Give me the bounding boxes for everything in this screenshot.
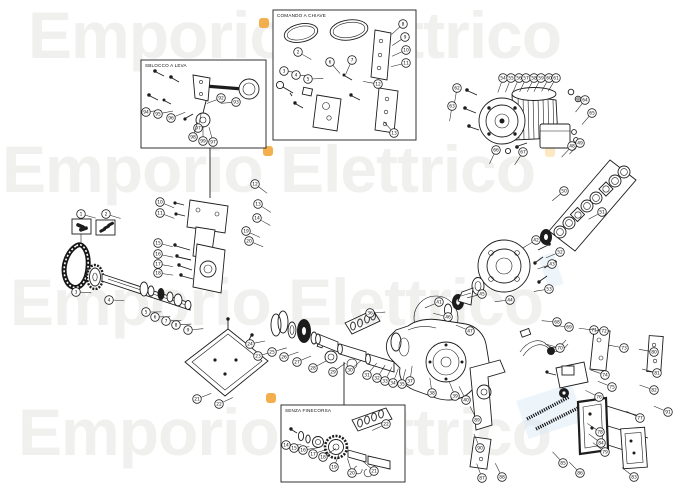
balloon-leader-line	[545, 344, 555, 347]
balloon-leader-line	[301, 356, 311, 360]
part-number: 17	[155, 262, 161, 268]
balloon-leader-line	[425, 304, 435, 308]
balloon-leader-line	[654, 406, 664, 410]
part-number: 55	[508, 76, 514, 82]
part-number: 52	[557, 250, 563, 256]
part-number: 44	[507, 298, 513, 304]
balloon-leader-line	[450, 111, 452, 121]
part-number: 30	[347, 368, 353, 374]
part-number: 81	[654, 371, 660, 377]
part-number: 48	[569, 144, 575, 150]
part-number: 6	[329, 60, 332, 66]
part-number: 21	[194, 397, 200, 403]
exploded-parts-diagram: SBLOCCO A LEVA	[0, 0, 694, 500]
balloon-leader-line	[86, 215, 96, 218]
part-number: 65	[589, 111, 595, 117]
part-number: 96	[168, 116, 174, 122]
part-number: 27	[294, 360, 300, 366]
part-number: 15	[291, 446, 297, 452]
part-number: 21	[371, 469, 377, 475]
balloon-leader-line	[546, 254, 556, 258]
part-number: 75	[609, 385, 615, 391]
part-number: 13	[391, 131, 397, 137]
balloon-leader-line	[589, 214, 598, 219]
balloon-leader-line	[193, 329, 204, 330]
part-number: 12	[252, 182, 258, 188]
part-number: 73	[621, 346, 627, 352]
part-number: 49	[577, 141, 583, 147]
balloon-leader-line	[354, 360, 362, 367]
part-number: 89	[474, 418, 480, 424]
part-number: 18	[320, 455, 326, 461]
balloon-leader-line	[163, 255, 173, 257]
part-number: 85	[560, 461, 566, 467]
inset-release-lever-label: SBLOCCO A LEVA	[145, 63, 188, 68]
part-number: 72	[601, 329, 607, 335]
part-number: 80	[651, 350, 657, 356]
part-number: 24	[247, 342, 253, 348]
part-number: 50	[561, 189, 567, 195]
part-number: 37	[407, 379, 413, 385]
part-number: 41	[436, 300, 442, 306]
part-number: 17	[310, 452, 316, 458]
part-number: 64	[582, 98, 588, 104]
balloon-leader-line	[253, 243, 263, 247]
balloon-leader-line	[552, 194, 560, 201]
part-number: 61	[553, 76, 559, 82]
limit-switch-assembly	[470, 328, 663, 469]
balloon-leader-line	[261, 220, 270, 225]
part-number: 98	[190, 135, 196, 141]
inset-release-lever: SBLOCCO A LEVA	[141, 60, 266, 198]
part-number: 5	[145, 310, 148, 316]
balloon-leader-line	[576, 104, 583, 112]
balloon-leader-line	[609, 345, 619, 347]
balloon-leader-line	[163, 265, 173, 267]
balloon-leader-line	[523, 242, 532, 247]
release-bracket	[173, 200, 228, 293]
part-number: 9	[404, 35, 407, 41]
part-number: 77	[637, 416, 643, 422]
part-number: 53	[546, 287, 552, 293]
part-number: 54	[500, 76, 506, 82]
balloon-leader-line	[163, 274, 173, 275]
seal-ring-icon	[554, 166, 630, 238]
part-number: 87	[479, 476, 485, 482]
part-number: 4	[108, 298, 111, 304]
balloon-leader-line	[454, 93, 456, 103]
part-number: 3	[75, 290, 78, 296]
part-number: 90	[477, 446, 483, 452]
balloon-leader-line	[250, 233, 260, 237]
balloon-leader-line	[163, 244, 173, 247]
balloon-leader-line	[582, 117, 589, 125]
balloon-leader-line	[288, 352, 298, 355]
balloon-leader-line	[553, 452, 560, 460]
part-number: 33	[382, 379, 388, 385]
part-number: 92	[218, 96, 224, 102]
part-number: 83	[631, 475, 637, 481]
balloon-leader-line	[626, 411, 636, 416]
balloon-leader-line	[598, 381, 608, 385]
balloon-leader-line	[81, 292, 92, 293]
balloon-leader-line	[542, 321, 553, 322]
part-number: 69	[566, 325, 572, 331]
part-number: 2	[297, 50, 300, 56]
part-number: 10	[403, 48, 409, 54]
part-number: 34	[390, 381, 396, 387]
output-flange	[458, 240, 557, 305]
part-number: 47	[467, 329, 473, 335]
balloon-leader-line	[375, 312, 386, 313]
part-number: 28	[310, 366, 316, 372]
balloon-leader-line	[277, 348, 287, 351]
part-number: 9	[187, 328, 190, 334]
part-number: 58	[531, 76, 537, 82]
part-number: 63	[449, 104, 455, 110]
balloon-leader-line	[201, 393, 211, 397]
part-number: 59	[538, 76, 544, 82]
part-number: 51	[599, 210, 605, 216]
balloon-leader-line	[562, 149, 569, 157]
part-number: 10	[157, 200, 163, 206]
part-number: 5	[307, 77, 310, 83]
part-number: 88	[499, 475, 505, 481]
part-number: 19	[331, 465, 337, 471]
part-number: 16	[300, 448, 306, 454]
part-number: 66	[493, 148, 499, 154]
part-number: 16	[155, 252, 161, 258]
part-number: 67	[520, 150, 526, 156]
part-number: 31	[364, 373, 370, 379]
part-number: 4	[295, 73, 298, 79]
balloon-leader-line	[579, 328, 590, 329]
part-number: 1	[80, 212, 83, 218]
part-number: 18	[155, 271, 161, 277]
balloon-leader-line	[495, 301, 506, 302]
part-number: 14	[254, 216, 260, 222]
part-number: 8	[402, 22, 405, 28]
balloon-leader-line	[255, 341, 265, 343]
part-number: 38	[429, 391, 435, 397]
part-number: 84	[598, 441, 604, 447]
part-number: 7	[351, 58, 354, 64]
part-number: 60	[546, 76, 552, 82]
part-number: 7	[165, 319, 168, 325]
part-number: 43	[549, 262, 555, 268]
part-number: 6	[154, 315, 157, 321]
part-number: 86	[577, 471, 583, 477]
part-number: 22	[383, 422, 389, 428]
part-number: 23	[255, 354, 261, 360]
electric-motor	[463, 88, 581, 154]
balloon-leader-line	[515, 156, 521, 165]
part-number: 62	[454, 86, 460, 92]
part-number: 13	[255, 202, 261, 208]
balloon-leader-line	[489, 154, 494, 164]
part-number: 8	[175, 323, 178, 329]
balloon-leader-line	[640, 385, 650, 388]
balloon-leader-line	[585, 390, 595, 395]
part-number: 12	[375, 82, 381, 88]
inset-key-release-label: COMANDO A CHIAVE	[277, 13, 326, 18]
part-number: 22	[216, 402, 222, 408]
part-number: 2	[105, 212, 108, 218]
balloon-leader-line	[433, 313, 443, 316]
balloon-leader-line	[569, 462, 576, 470]
part-number: 82	[651, 388, 657, 394]
part-number: 97	[210, 140, 216, 146]
part-number: 29	[330, 370, 336, 376]
part-number: 32	[374, 376, 380, 382]
part-number: 76	[596, 395, 602, 401]
balloon-leader-line	[498, 82, 502, 92]
part-number: 40	[463, 398, 469, 404]
balloon-leader-line	[164, 204, 174, 208]
part-number: 91	[665, 410, 671, 416]
part-number: 20	[246, 239, 252, 245]
balloon-leader-line	[262, 207, 271, 213]
balloon-leader-line	[317, 361, 326, 366]
balloon-leader-line	[223, 398, 233, 402]
part-number: 79	[602, 450, 608, 456]
part-number: 57	[523, 76, 529, 82]
drive-chain	[64, 245, 88, 288]
part-number: 15	[155, 241, 161, 247]
part-number: 74	[602, 373, 608, 379]
part-number: 70	[557, 346, 563, 352]
part-number: 42	[533, 238, 539, 244]
part-number: 25	[269, 350, 275, 356]
part-number: 95	[155, 112, 161, 118]
exploded-parts-drawing: Emporio ElettricoEmporio ElettricoEmpori…	[0, 0, 694, 500]
micro-switch	[562, 366, 574, 375]
balloon-leader-line	[259, 187, 267, 193]
worm-shaft-assembly	[316, 310, 394, 372]
part-number: 36	[367, 311, 373, 317]
part-number: 35	[399, 382, 405, 388]
balloon-leader-line	[495, 463, 500, 473]
part-number: 11	[403, 61, 409, 67]
wire-connector	[547, 347, 555, 355]
part-number: 71	[591, 328, 597, 334]
inset-no-limit-switch-label: SENZA FINECORSA	[285, 408, 332, 413]
part-number: 78	[597, 430, 603, 436]
balloon-leader-line	[395, 369, 399, 379]
part-number: 45	[479, 292, 485, 298]
balloon-leader-line	[505, 82, 509, 92]
part-number: 94	[143, 110, 149, 116]
part-number: 56	[516, 76, 522, 82]
part-number: 39	[452, 394, 458, 400]
part-number: 20	[349, 471, 355, 477]
part-number: 46	[445, 315, 451, 321]
balloon-leader-line	[110, 215, 120, 218]
output-shaft-assembly	[87, 265, 191, 310]
part-number: 68	[554, 320, 560, 326]
balloon-leader-line	[534, 290, 544, 292]
part-number: 14	[283, 443, 289, 449]
part-number: 26	[281, 355, 287, 361]
part-number: 99	[200, 139, 206, 145]
balloon-leader-line	[164, 215, 174, 219]
balloon-leader-line	[181, 324, 192, 325]
part-number: 93	[233, 100, 239, 106]
part-number: 19	[243, 229, 249, 235]
part-number: 3	[283, 69, 286, 75]
part-number: 11	[157, 211, 163, 217]
terminal-box	[540, 124, 570, 148]
